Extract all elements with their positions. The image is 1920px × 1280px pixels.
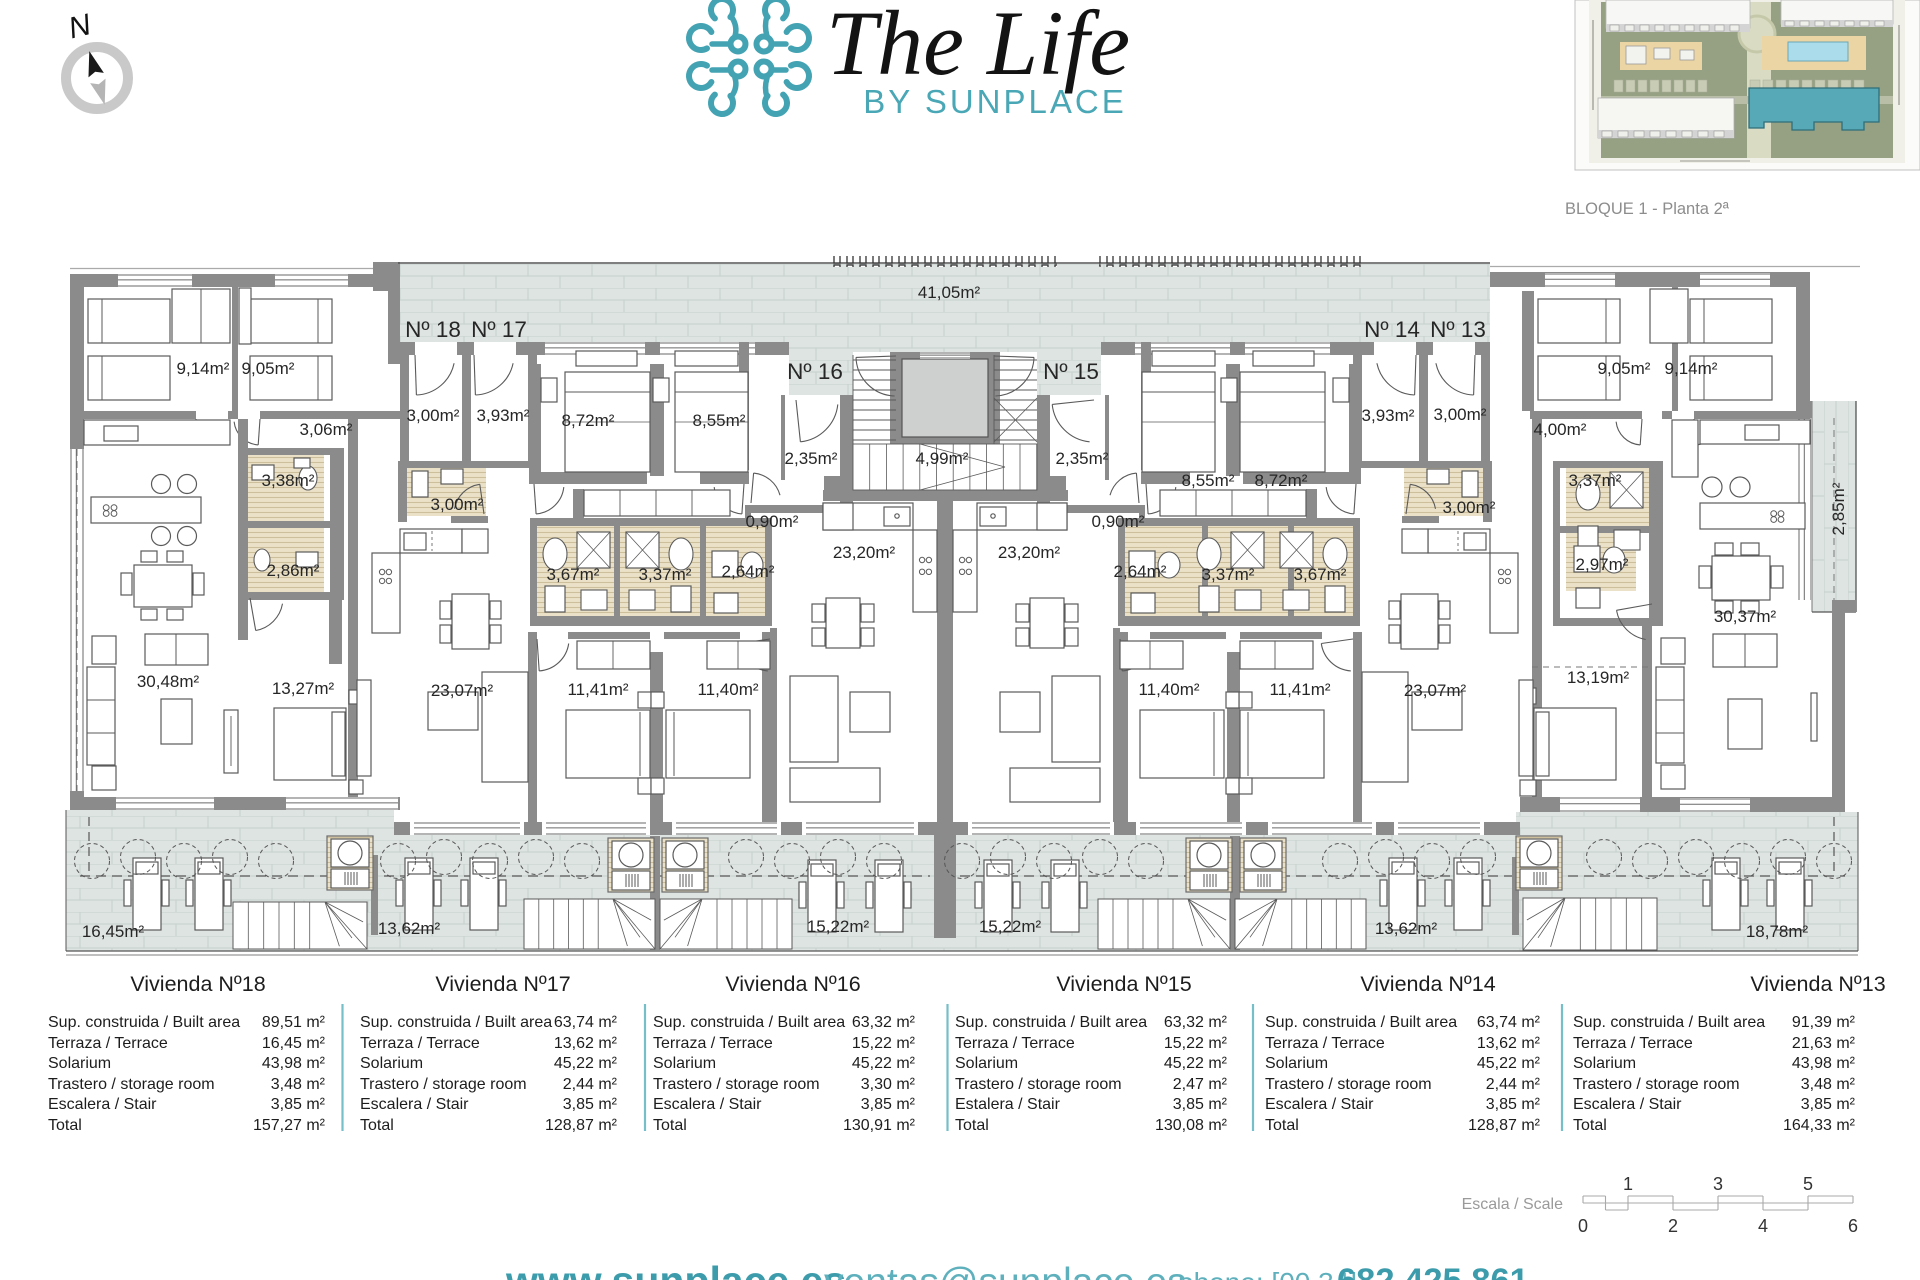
svg-text:11,41m²: 11,41m² <box>1269 680 1330 699</box>
svg-text:16,45 m²: 16,45 m² <box>262 1035 326 1052</box>
svg-text:30,48m²: 30,48m² <box>137 672 200 691</box>
svg-text:8,55m²: 8,55m² <box>1182 471 1235 490</box>
svg-text:11,40m²: 11,40m² <box>697 680 758 699</box>
svg-text:13,62m²: 13,62m² <box>1375 919 1438 938</box>
svg-text:3,85 m²: 3,85 m² <box>271 1096 326 1113</box>
svg-text:0,90m²: 0,90m² <box>746 512 799 531</box>
svg-text:18,78m²: 18,78m² <box>1746 922 1809 941</box>
svg-text:Terraza / Terrace: Terraza / Terrace <box>955 1035 1075 1052</box>
svg-text:Total: Total <box>1265 1117 1299 1134</box>
svg-text:3,00m²: 3,00m² <box>1434 405 1487 424</box>
svg-text:0,90m²: 0,90m² <box>1092 512 1145 531</box>
svg-text:Sup. construida / Built area: Sup. construida / Built area <box>48 1014 240 1031</box>
svg-text:Trastero / storage room: Trastero / storage room <box>653 1076 820 1093</box>
svg-text:Trastero / storage room: Trastero / storage room <box>1573 1076 1740 1093</box>
svg-text:2,64m²: 2,64m² <box>1114 562 1167 581</box>
svg-text:15,22 m²: 15,22 m² <box>852 1035 916 1052</box>
svg-text:3,00m²: 3,00m² <box>1443 498 1496 517</box>
svg-text:3,37m²: 3,37m² <box>1569 471 1622 490</box>
svg-text:63,32 m²: 63,32 m² <box>1164 1014 1228 1031</box>
svg-text:-: - <box>1150 1261 1163 1280</box>
svg-text:2,47 m²: 2,47 m² <box>1173 1076 1228 1093</box>
svg-text:13,19m²: 13,19m² <box>1567 668 1630 687</box>
svg-text:Vivienda Nº13: Vivienda Nº13 <box>1750 972 1885 996</box>
svg-text:157,27 m²: 157,27 m² <box>253 1117 326 1134</box>
svg-text:3,06m²: 3,06m² <box>300 420 353 439</box>
svg-text:Vivienda Nº14: Vivienda Nº14 <box>1360 972 1495 996</box>
svg-text:4,00m²: 4,00m² <box>1534 420 1587 439</box>
svg-text:8,72m²: 8,72m² <box>1255 471 1308 490</box>
svg-text:3,85 m²: 3,85 m² <box>1801 1096 1856 1113</box>
svg-text:Solarium: Solarium <box>48 1055 111 1072</box>
svg-text:16,45m²: 16,45m² <box>82 922 145 941</box>
svg-text:23,07m²: 23,07m² <box>1404 681 1467 700</box>
svg-text:N: N <box>65 8 94 45</box>
svg-text:The Life: The Life <box>826 0 1130 94</box>
svg-text:3,37m²: 3,37m² <box>1202 565 1255 584</box>
svg-text:3,48 m²: 3,48 m² <box>1801 1076 1856 1093</box>
svg-text:phone: [00 34]: phone: [00 34] <box>1178 1267 1357 1280</box>
svg-text:BY SUNPLACE: BY SUNPLACE <box>863 83 1126 120</box>
svg-text:3,00m²: 3,00m² <box>431 495 484 514</box>
svg-text:13,62m²: 13,62m² <box>378 919 441 938</box>
svg-text:13,62 m²: 13,62 m² <box>1477 1035 1541 1052</box>
svg-text:63,74 m²: 63,74 m² <box>554 1014 618 1031</box>
svg-text:45,22 m²: 45,22 m² <box>1164 1055 1228 1072</box>
svg-text:2,85m²: 2,85m² <box>1829 482 1848 535</box>
svg-text:Vivienda Nº17: Vivienda Nº17 <box>435 972 570 996</box>
svg-text:Nº 14: Nº 14 <box>1364 317 1420 342</box>
svg-text:0: 0 <box>1578 1216 1588 1236</box>
svg-text:15,22m²: 15,22m² <box>807 917 870 936</box>
svg-text:Sup. construida / Built area: Sup. construida / Built area <box>1265 1014 1457 1031</box>
svg-text:8,55m²: 8,55m² <box>693 411 746 430</box>
svg-text:Nº 16: Nº 16 <box>787 359 843 384</box>
svg-text:15,22 m²: 15,22 m² <box>1164 1035 1228 1052</box>
svg-text:Trastero / storage room: Trastero / storage room <box>48 1076 215 1093</box>
svg-text:Total: Total <box>48 1117 82 1134</box>
svg-text:8,72m²: 8,72m² <box>562 411 615 430</box>
svg-text:45,22 m²: 45,22 m² <box>554 1055 618 1072</box>
svg-text:Escalera / Stair: Escalera / Stair <box>360 1096 469 1113</box>
svg-text:128,87 m²: 128,87 m² <box>1468 1117 1541 1134</box>
svg-text:Solarium: Solarium <box>1265 1055 1328 1072</box>
svg-text:Nº 17: Nº 17 <box>471 317 527 342</box>
svg-text:Terraza / Terrace: Terraza / Terrace <box>653 1035 773 1052</box>
svg-text:2,35m²: 2,35m² <box>1056 449 1109 468</box>
svg-text:91,39 m²: 91,39 m² <box>1792 1014 1856 1031</box>
svg-text:Vivienda Nº18: Vivienda Nº18 <box>130 972 265 996</box>
svg-text:Trastero / storage room: Trastero / storage room <box>955 1076 1122 1093</box>
svg-text:23,20m²: 23,20m² <box>833 543 896 562</box>
svg-text:Escalera / Stair: Escalera / Stair <box>1573 1096 1682 1113</box>
svg-text:2,86m²: 2,86m² <box>267 561 320 580</box>
svg-text:6: 6 <box>1848 1216 1858 1236</box>
svg-text:Nº 13: Nº 13 <box>1430 317 1486 342</box>
svg-text:Terraza / Terrace: Terraza / Terrace <box>1265 1035 1385 1052</box>
svg-text:3,67m²: 3,67m² <box>1294 565 1347 584</box>
svg-text:130,91 m²: 130,91 m² <box>843 1117 916 1134</box>
svg-text:13,27m²: 13,27m² <box>272 679 335 698</box>
svg-text:Total: Total <box>360 1117 394 1134</box>
svg-text:Solarium: Solarium <box>360 1055 423 1072</box>
svg-text:Sup. construida / Built area: Sup. construida / Built area <box>360 1014 552 1031</box>
svg-text:30,37m²: 30,37m² <box>1714 607 1777 626</box>
svg-text:45,22 m²: 45,22 m² <box>852 1055 916 1072</box>
svg-text:BLOQUE 1 - Planta 2ª: BLOQUE 1 - Planta 2ª <box>1565 200 1730 218</box>
svg-text:23,07m²: 23,07m² <box>431 681 494 700</box>
svg-text:4,99m²: 4,99m² <box>916 449 969 468</box>
svg-text:Total: Total <box>653 1117 687 1134</box>
svg-text:Solarium: Solarium <box>653 1055 716 1072</box>
svg-text:11,40m²: 11,40m² <box>1138 680 1199 699</box>
svg-text:9,05m²: 9,05m² <box>242 359 295 378</box>
svg-text:Terraza / Terrace: Terraza / Terrace <box>1573 1035 1693 1052</box>
svg-text:9,05m²: 9,05m² <box>1598 359 1651 378</box>
svg-text:Escala / Scale: Escala / Scale <box>1462 1196 1563 1213</box>
svg-text:13,62 m²: 13,62 m² <box>554 1035 618 1052</box>
svg-text:Sup. construida / Built area: Sup. construida / Built area <box>653 1014 845 1031</box>
svg-text:89,51 m²: 89,51 m² <box>262 1014 326 1031</box>
svg-text:130,08 m²: 130,08 m² <box>1155 1117 1228 1134</box>
svg-text:3,38m²: 3,38m² <box>262 471 315 490</box>
svg-text:ventas@sunplace.es: ventas@sunplace.es <box>824 1261 1187 1280</box>
svg-text:128,87 m²: 128,87 m² <box>545 1117 618 1134</box>
svg-text:43,98 m²: 43,98 m² <box>1792 1055 1856 1072</box>
svg-text:3,85 m²: 3,85 m² <box>1486 1096 1541 1113</box>
svg-text:63,74 m²: 63,74 m² <box>1477 1014 1541 1031</box>
svg-text:45,22 m²: 45,22 m² <box>1477 1055 1541 1072</box>
svg-text:Vivienda Nº15: Vivienda Nº15 <box>1056 972 1191 996</box>
svg-text:3,85 m²: 3,85 m² <box>861 1096 916 1113</box>
svg-text:2: 2 <box>1668 1216 1678 1236</box>
svg-text:Terraza / Terrace: Terraza / Terrace <box>360 1035 480 1052</box>
svg-text:Solarium: Solarium <box>1573 1055 1636 1072</box>
svg-text:Total: Total <box>955 1117 989 1134</box>
svg-text:Estalera / Stair: Estalera / Stair <box>955 1096 1061 1113</box>
svg-text:23,20m²: 23,20m² <box>998 543 1061 562</box>
svg-text:Trastero / storage room: Trastero / storage room <box>360 1076 527 1093</box>
svg-text:21,63 m²: 21,63 m² <box>1792 1035 1856 1052</box>
svg-text:3,93m²: 3,93m² <box>1362 406 1415 425</box>
svg-text:2,97m²: 2,97m² <box>1576 555 1629 574</box>
svg-text:63,32 m²: 63,32 m² <box>852 1014 916 1031</box>
svg-text:Terraza / Terrace: Terraza / Terrace <box>48 1035 168 1052</box>
svg-text:-: - <box>796 1261 809 1280</box>
svg-text:4: 4 <box>1758 1216 1768 1236</box>
svg-text:3,00m²: 3,00m² <box>407 406 460 425</box>
svg-text:9,14m²: 9,14m² <box>177 359 230 378</box>
svg-text:3,48 m²: 3,48 m² <box>271 1076 326 1093</box>
svg-text:3,67m²: 3,67m² <box>547 565 600 584</box>
svg-text:Trastero / storage room: Trastero / storage room <box>1265 1076 1432 1093</box>
svg-text:2,64m²: 2,64m² <box>722 562 775 581</box>
svg-text:682 425 861: 682 425 861 <box>1337 1262 1529 1280</box>
svg-text:Nº 18: Nº 18 <box>405 317 461 342</box>
svg-text:11,41m²: 11,41m² <box>567 680 628 699</box>
svg-text:3,37m²: 3,37m² <box>639 565 692 584</box>
svg-text:3,30 m²: 3,30 m² <box>861 1076 916 1093</box>
svg-text:3: 3 <box>1713 1174 1723 1194</box>
svg-text:3,85 m²: 3,85 m² <box>563 1096 618 1113</box>
svg-text:2,44 m²: 2,44 m² <box>1486 1076 1541 1093</box>
svg-text:Sup. construida / Built area: Sup. construida / Built area <box>1573 1014 1765 1031</box>
svg-text:Sup. construida / Built area: Sup. construida / Built area <box>955 1014 1147 1031</box>
svg-text:Total: Total <box>1573 1117 1607 1134</box>
svg-text:9,14m²: 9,14m² <box>1665 359 1718 378</box>
svg-text:3,93m²: 3,93m² <box>477 406 530 425</box>
svg-text:3,85 m²: 3,85 m² <box>1173 1096 1228 1113</box>
svg-text:15,22m²: 15,22m² <box>979 917 1042 936</box>
svg-text:Vivienda Nº16: Vivienda Nº16 <box>725 972 860 996</box>
svg-text:5: 5 <box>1803 1174 1813 1194</box>
svg-text:2,44 m²: 2,44 m² <box>563 1076 618 1093</box>
svg-text:2,35m²: 2,35m² <box>785 449 838 468</box>
svg-text:164,33 m²: 164,33 m² <box>1783 1117 1856 1134</box>
svg-text:Escalera / Stair: Escalera / Stair <box>48 1096 157 1113</box>
svg-text:41,05m²: 41,05m² <box>918 283 981 302</box>
svg-text:Escalera / Stair: Escalera / Stair <box>1265 1096 1374 1113</box>
svg-text:Nº 15: Nº 15 <box>1043 359 1099 384</box>
svg-text:Escalera / Stair: Escalera / Stair <box>653 1096 762 1113</box>
svg-text:43,98 m²: 43,98 m² <box>262 1055 326 1072</box>
svg-text:1: 1 <box>1623 1174 1633 1194</box>
svg-text:Solarium: Solarium <box>955 1055 1018 1072</box>
